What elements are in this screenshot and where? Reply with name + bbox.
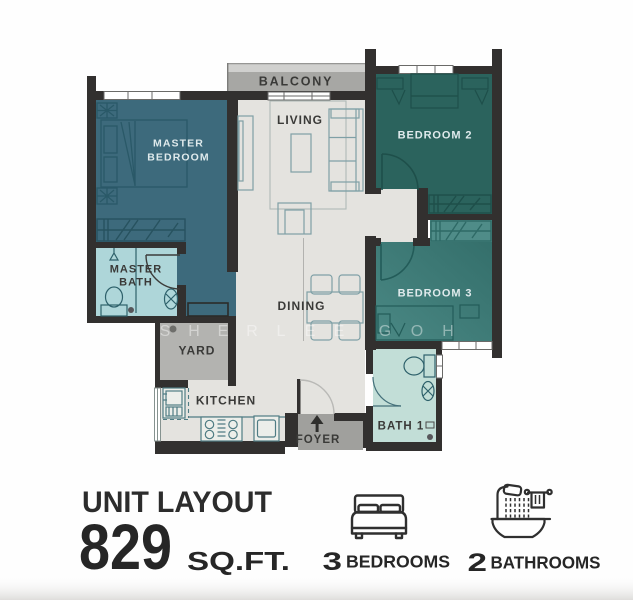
svg-text:BEDROOMS: BEDROOMS xyxy=(346,552,450,572)
svg-text:YARD: YARD xyxy=(179,344,216,358)
svg-text:FOYER: FOYER xyxy=(296,434,341,446)
svg-text:S: S xyxy=(160,323,171,340)
svg-text:DINING: DINING xyxy=(278,299,326,313)
svg-text:BATH: BATH xyxy=(119,277,153,289)
svg-text:BEDROOM 3: BEDROOM 3 xyxy=(398,288,473,300)
svg-text:SQ.FT.: SQ.FT. xyxy=(187,546,290,576)
svg-text:BEDROOM 2: BEDROOM 2 xyxy=(398,130,473,142)
svg-text:3: 3 xyxy=(323,548,343,576)
svg-text:O: O xyxy=(411,323,423,340)
svg-text:E: E xyxy=(334,323,345,340)
svg-text:MASTER: MASTER xyxy=(110,264,162,276)
svg-text:KITCHEN: KITCHEN xyxy=(196,394,256,408)
svg-text:MASTER: MASTER xyxy=(153,138,204,150)
svg-text:R: R xyxy=(246,323,258,340)
svg-text:H: H xyxy=(188,323,200,340)
svg-text:G: G xyxy=(379,323,391,340)
svg-text:829: 829 xyxy=(79,511,172,583)
svg-text:BEDROOM: BEDROOM xyxy=(147,152,210,164)
svg-text:LIVING: LIVING xyxy=(277,113,323,127)
svg-text:H: H xyxy=(442,323,454,340)
svg-text:E: E xyxy=(218,323,229,340)
svg-text:2: 2 xyxy=(468,549,488,577)
svg-text:BALCONY: BALCONY xyxy=(259,75,333,89)
svg-text:E: E xyxy=(305,323,316,340)
svg-text:L: L xyxy=(277,323,286,340)
svg-text:BATHROOMS: BATHROOMS xyxy=(491,553,601,573)
svg-text:BATH 1: BATH 1 xyxy=(378,421,425,433)
